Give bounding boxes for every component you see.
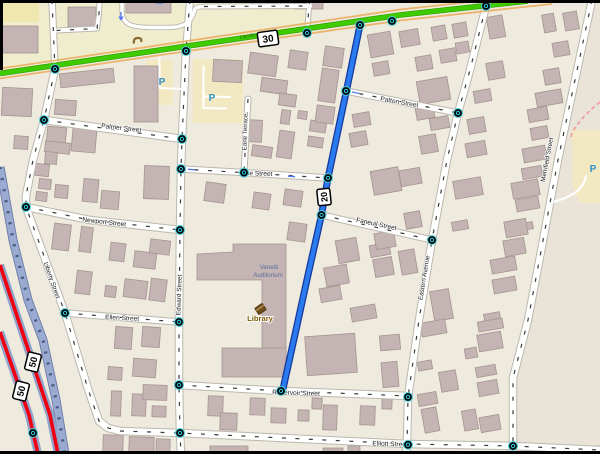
- svg-text:P: P: [159, 77, 166, 88]
- svg-text:Earle Terrace: Earle Terrace: [241, 113, 249, 150]
- svg-text:30: 30: [262, 33, 275, 46]
- svg-text:Library: Library: [247, 314, 274, 323]
- svg-text:Elliott Street: Elliott Street: [372, 440, 408, 448]
- svg-text:ne Street: ne Street: [246, 170, 273, 178]
- svg-text:Vanetti: Vanetti: [260, 264, 279, 271]
- svg-text:P: P: [590, 164, 597, 175]
- svg-text:Edward Street: Edward Street: [175, 274, 183, 315]
- svg-text:Auditorium: Auditorium: [253, 272, 283, 279]
- svg-text:20: 20: [319, 191, 330, 202]
- svg-text:P: P: [209, 93, 216, 104]
